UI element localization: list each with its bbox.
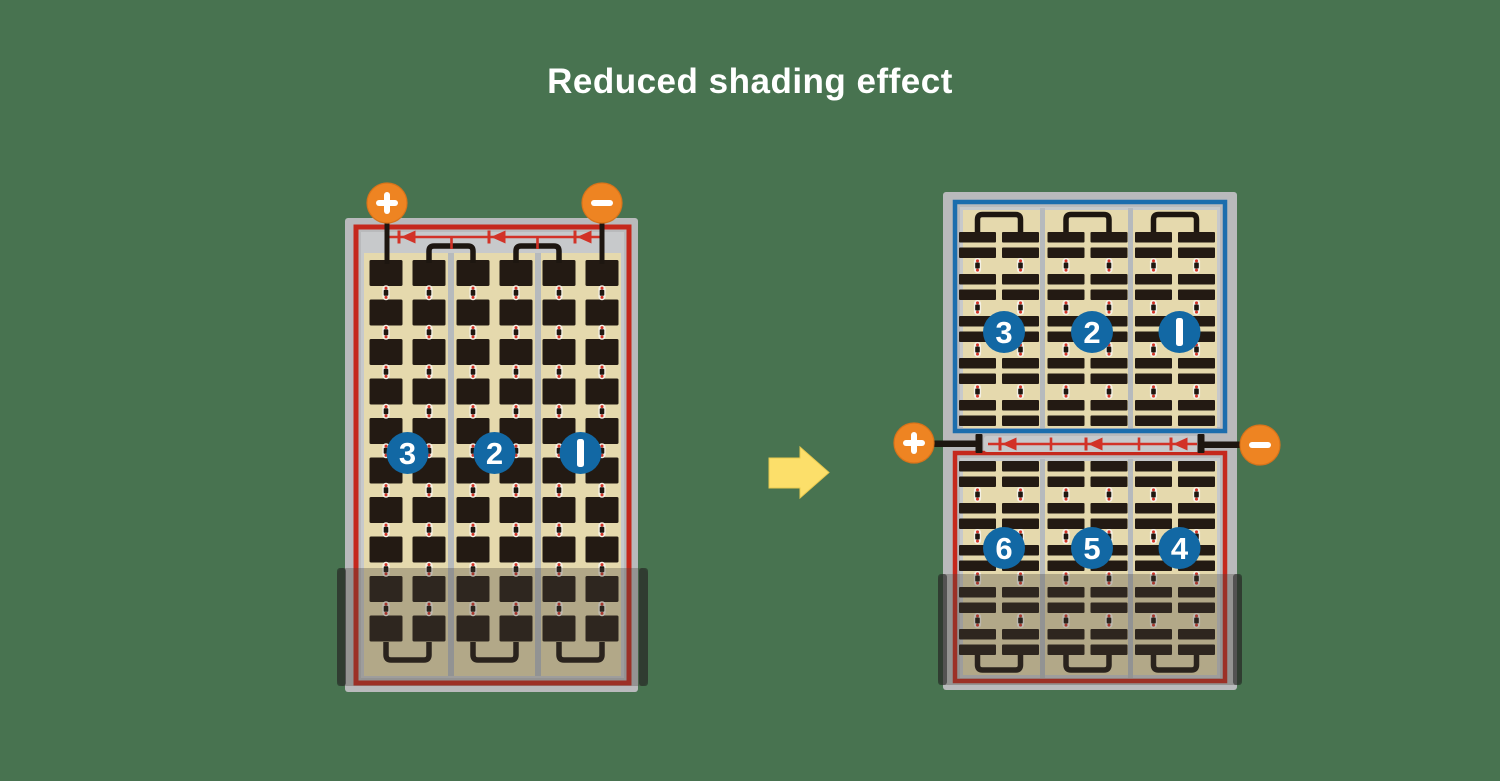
minus-glyph <box>591 200 613 206</box>
connector-dot <box>515 493 518 496</box>
solar-cell <box>457 537 490 563</box>
cell-connector <box>425 364 432 379</box>
diode-bar <box>574 231 577 244</box>
connector-dot <box>558 533 561 536</box>
connector-dot <box>558 484 561 487</box>
connector-dot <box>1152 269 1155 272</box>
solar-cell <box>586 537 619 563</box>
connector-dot <box>515 524 518 527</box>
cell-connector <box>1105 258 1112 273</box>
string-label: 2 <box>1083 315 1100 350</box>
shading-overlay-edge <box>639 568 648 686</box>
cell-connector <box>1105 300 1112 315</box>
cell-connector <box>425 325 432 340</box>
section-divider <box>1040 208 1045 429</box>
cell-connector <box>512 364 519 379</box>
cell-connector <box>1062 384 1069 399</box>
connector-dot <box>558 493 561 496</box>
cell-connector <box>382 522 389 537</box>
connector-dot <box>1152 259 1155 262</box>
connector-dot <box>976 311 979 314</box>
connector-dot <box>515 366 518 369</box>
half-cell-bar <box>1002 416 1039 427</box>
connector-dot <box>976 540 979 543</box>
connector-dot <box>515 484 518 487</box>
connector-dot <box>1019 395 1022 398</box>
string-number-badge <box>1159 311 1201 353</box>
connector-dot <box>428 405 431 408</box>
connector-core <box>427 329 432 335</box>
half-cell-bar <box>1091 400 1128 411</box>
cell-connector <box>512 325 519 340</box>
connector-core <box>1194 263 1199 269</box>
connector-dot <box>385 484 388 487</box>
plus-glyph <box>911 432 917 454</box>
string-label-bar <box>1176 318 1183 346</box>
connector-dot <box>428 484 431 487</box>
cell-connector <box>974 529 981 544</box>
string-label: 2 <box>486 436 503 471</box>
cell-connector <box>382 483 389 498</box>
connector-core <box>1194 305 1199 311</box>
half-cell-bar <box>1091 503 1128 514</box>
connector-core <box>557 527 562 533</box>
string-number-badge: 4 <box>1159 527 1201 569</box>
solar-cell <box>500 339 533 365</box>
connector-dot <box>558 287 561 290</box>
connector-core <box>1151 347 1156 353</box>
connector-dot <box>1019 269 1022 272</box>
connector-dot <box>1019 488 1022 491</box>
connector-core <box>1064 263 1069 269</box>
connector-dot <box>601 375 604 378</box>
connector-dot <box>976 498 979 501</box>
cell-connector <box>382 404 389 419</box>
half-cell-bar <box>1178 477 1215 488</box>
connector-core <box>1018 347 1023 353</box>
half-cell-bar <box>1135 503 1172 514</box>
connector-dot <box>428 287 431 290</box>
connector-core <box>1194 347 1199 353</box>
connector-dot <box>558 405 561 408</box>
connector-dot <box>601 563 604 566</box>
connector-dot <box>385 335 388 338</box>
solar-cell <box>370 537 403 563</box>
half-cell-bar <box>1002 374 1039 385</box>
shading-overlay-edge <box>337 568 346 686</box>
connector-core <box>1151 389 1156 395</box>
connector-dot <box>472 296 475 299</box>
connector-core <box>384 527 389 533</box>
cell-connector <box>598 285 605 300</box>
connector-dot <box>1195 301 1198 304</box>
terminal-wire <box>600 220 605 264</box>
connector-core <box>514 329 519 335</box>
connector-core <box>1064 534 1069 540</box>
connector-core <box>471 290 476 296</box>
connector-dot <box>385 524 388 527</box>
half-cell-bar <box>1091 290 1128 301</box>
connector-dot <box>428 326 431 329</box>
connector-core <box>557 408 562 414</box>
connector-dot <box>428 296 431 299</box>
half-cell-bar <box>959 248 996 259</box>
connector-dot <box>1195 395 1198 398</box>
cell-connector <box>974 384 981 399</box>
connector-dot <box>472 414 475 417</box>
solar-cell <box>500 300 533 326</box>
half-cell-bar <box>1002 290 1039 301</box>
solar-cell <box>457 339 490 365</box>
half-cell-bar <box>1091 358 1128 369</box>
connector-dot <box>558 296 561 299</box>
half-cell-bar <box>959 274 996 285</box>
connector-core <box>1151 492 1156 498</box>
cell-connector <box>382 364 389 379</box>
connector-dot <box>1019 385 1022 388</box>
half-cell-bar <box>1178 374 1215 385</box>
connector-dot <box>1195 488 1198 491</box>
diagram-canvas: Reduced shading effect 32+−32654+− <box>0 0 1500 781</box>
connector-dot <box>428 445 431 448</box>
minus-terminal: − <box>1240 425 1280 465</box>
cell-connector <box>512 522 519 537</box>
connector-core <box>471 408 476 414</box>
string-label: 3 <box>995 315 1012 350</box>
connector-core <box>557 290 562 296</box>
half-cell-bar <box>1091 416 1128 427</box>
string-number-badge: 2 <box>474 432 516 474</box>
connector-dot <box>601 524 604 527</box>
connector-dot <box>558 326 561 329</box>
connector-dot <box>428 563 431 566</box>
connector-dot <box>1108 395 1111 398</box>
connector-dot <box>515 533 518 536</box>
solar-cell <box>543 379 576 405</box>
string-label: 6 <box>995 531 1012 566</box>
cell-connector <box>382 285 389 300</box>
connector-dot <box>558 375 561 378</box>
string-number-badge: 5 <box>1071 527 1113 569</box>
connector-dot <box>558 445 561 448</box>
connector-core <box>514 369 519 375</box>
connector-dot <box>385 366 388 369</box>
cell-connector <box>425 404 432 419</box>
connector-dot <box>385 296 388 299</box>
connector-core <box>1064 492 1069 498</box>
half-cell-bar <box>1091 248 1128 259</box>
half-cell-bar <box>1002 232 1039 243</box>
solar-cell <box>586 339 619 365</box>
connector-core <box>384 290 389 296</box>
half-cell-bar <box>1002 274 1039 285</box>
half-cell-bar <box>1002 248 1039 259</box>
connector-dot <box>385 563 388 566</box>
connector-core <box>1151 263 1156 269</box>
half-cell-bar <box>1002 461 1039 472</box>
half-cell-bar <box>1178 248 1215 259</box>
connector-dot <box>515 287 518 290</box>
connector-dot <box>472 335 475 338</box>
cell-connector <box>1017 258 1024 273</box>
terminal-wire <box>933 441 977 448</box>
connector-dot <box>428 524 431 527</box>
cell-connector <box>1193 487 1200 502</box>
connector-dot <box>1019 311 1022 314</box>
cell-connector <box>598 522 605 537</box>
half-cell-bar <box>1091 477 1128 488</box>
connector-dot <box>601 405 604 408</box>
half-cell-bar <box>1002 400 1039 411</box>
connector-core <box>514 527 519 533</box>
cell-connector <box>555 364 562 379</box>
cell-connector <box>1193 300 1200 315</box>
cell-connector <box>1150 384 1157 399</box>
connector-core <box>975 534 980 540</box>
solar-cell <box>413 339 446 365</box>
connector-core <box>471 329 476 335</box>
connector-dot <box>1019 530 1022 533</box>
half-cell-bar <box>1178 416 1215 427</box>
half-cell-bar <box>1048 477 1085 488</box>
connector-dot <box>1108 311 1111 314</box>
connector-dot <box>472 445 475 448</box>
string-label: 3 <box>399 436 416 471</box>
half-cell-bar <box>1135 290 1172 301</box>
connector-core <box>975 492 980 498</box>
half-cell-bar <box>1048 232 1085 243</box>
cell-connector <box>974 258 981 273</box>
half-cell-bar <box>1135 477 1172 488</box>
connector-dot <box>976 343 979 346</box>
connector-dot <box>385 287 388 290</box>
shading-overlay <box>337 568 648 686</box>
connector-dot <box>515 405 518 408</box>
solar-cell <box>500 379 533 405</box>
half-cell-bar <box>1135 358 1172 369</box>
half-cell-bar <box>1048 290 1085 301</box>
connector-dot <box>472 524 475 527</box>
connector-dot <box>1065 540 1068 543</box>
cell-connector <box>1193 384 1200 399</box>
half-cell-bar <box>1135 461 1172 472</box>
cell-connector <box>425 285 432 300</box>
connector-dot <box>558 563 561 566</box>
cell-connector <box>1150 258 1157 273</box>
connector-dot <box>472 563 475 566</box>
cell-connector <box>1062 529 1069 544</box>
connector-dot <box>385 493 388 496</box>
connector-dot <box>1152 395 1155 398</box>
connector-core <box>557 487 562 493</box>
cell-connector <box>598 325 605 340</box>
half-cell-bar <box>1002 358 1039 369</box>
diode-bar <box>488 231 491 244</box>
solar-cell <box>543 497 576 523</box>
connector-dot <box>472 405 475 408</box>
connector-dot <box>976 301 979 304</box>
half-cell-bar <box>959 503 996 514</box>
cell-connector <box>555 325 562 340</box>
connector-dot <box>976 269 979 272</box>
half-cell-bar <box>1048 374 1085 385</box>
connector-core <box>427 527 432 533</box>
cell-connector <box>512 483 519 498</box>
connector-dot <box>428 493 431 496</box>
connector-dot <box>1108 301 1111 304</box>
cell-connector <box>382 325 389 340</box>
connector-core <box>1107 347 1112 353</box>
solar-cell <box>370 379 403 405</box>
connector-dot <box>558 524 561 527</box>
connector-core <box>384 487 389 493</box>
shading-overlay <box>938 574 1242 685</box>
solar-cell <box>457 379 490 405</box>
connector-core <box>1107 492 1112 498</box>
cell-connector <box>1150 342 1157 357</box>
connector-dot <box>385 326 388 329</box>
connector-dot <box>1152 311 1155 314</box>
connector-core <box>471 369 476 375</box>
connector-dot <box>1195 498 1198 501</box>
connector-dot <box>976 488 979 491</box>
half-cell-bar <box>959 358 996 369</box>
connector-dot <box>428 533 431 536</box>
connector-dot <box>1152 540 1155 543</box>
connector-dot <box>1065 259 1068 262</box>
half-cell-bar <box>1178 290 1215 301</box>
connector-dot <box>1065 343 1068 346</box>
connector-dot <box>976 395 979 398</box>
cell-connector <box>598 404 605 419</box>
connector-core <box>427 290 432 296</box>
cell-connector <box>555 522 562 537</box>
connector-dot <box>1152 343 1155 346</box>
diode-bar <box>1085 438 1088 451</box>
connector-core <box>600 329 605 335</box>
solar-cell <box>543 300 576 326</box>
connector-core <box>975 347 980 353</box>
half-cell-bar <box>1048 400 1085 411</box>
connector-dot <box>601 296 604 299</box>
connector-core <box>384 408 389 414</box>
connector-core <box>514 408 519 414</box>
cell-connector <box>1062 342 1069 357</box>
string-label: 4 <box>1171 531 1189 566</box>
half-cell-bar <box>1135 374 1172 385</box>
diode-bar <box>398 231 401 244</box>
connector-dot <box>472 493 475 496</box>
connector-core <box>471 527 476 533</box>
connector-dot <box>1152 301 1155 304</box>
string-label-bar <box>577 439 584 467</box>
connector-core <box>975 263 980 269</box>
half-cell-bar <box>1048 503 1085 514</box>
cell-connector <box>1150 300 1157 315</box>
connector-dot <box>1108 353 1111 356</box>
connector-core <box>384 329 389 335</box>
connector-dot <box>1152 530 1155 533</box>
half-cell-bar <box>1048 274 1085 285</box>
cell-connector <box>469 522 476 537</box>
solar-cell <box>586 497 619 523</box>
connector-core <box>1107 263 1112 269</box>
solar-cell <box>413 260 446 286</box>
connector-dot <box>1019 353 1022 356</box>
cell-connector <box>555 285 562 300</box>
plus-terminal: + <box>894 423 934 463</box>
solar-cell <box>500 497 533 523</box>
left-panel: 32+− <box>337 183 648 692</box>
connector-dot <box>976 259 979 262</box>
solar-cell <box>543 537 576 563</box>
terminal-wire <box>1203 442 1243 449</box>
connector-dot <box>472 366 475 369</box>
cell-connector <box>469 404 476 419</box>
connector-dot <box>601 287 604 290</box>
connector-core <box>427 369 432 375</box>
cell-connector <box>598 483 605 498</box>
connector-dot <box>601 493 604 496</box>
cell-connector <box>974 300 981 315</box>
half-cell-bar <box>1135 400 1172 411</box>
cell-connector <box>555 483 562 498</box>
half-cell-bar <box>1178 503 1215 514</box>
connector-dot <box>1019 301 1022 304</box>
cell-connector <box>512 285 519 300</box>
connector-dot <box>472 326 475 329</box>
half-cell-bar <box>1091 461 1128 472</box>
connector-core <box>557 329 562 335</box>
half-cell-bar <box>1135 519 1172 530</box>
connector-core <box>1064 389 1069 395</box>
string-number-badge <box>560 432 602 474</box>
cell-connector <box>512 404 519 419</box>
connector-dot <box>472 533 475 536</box>
connector-dot <box>385 445 388 448</box>
section-divider <box>1128 208 1133 429</box>
connector-dot <box>1019 259 1022 262</box>
solar-cell <box>370 300 403 326</box>
connector-core <box>384 369 389 375</box>
half-cell-bar <box>959 232 996 243</box>
half-cell-bar <box>1178 461 1215 472</box>
connector-core <box>1018 492 1023 498</box>
solar-cell <box>543 260 576 286</box>
connector-core <box>1107 389 1112 395</box>
connector-dot <box>472 287 475 290</box>
connector-core <box>600 408 605 414</box>
connector-dot <box>1108 259 1111 262</box>
connector-dot <box>1152 498 1155 501</box>
cell-connector <box>469 325 476 340</box>
cell-connector <box>1062 258 1069 273</box>
half-cell-bar <box>959 290 996 301</box>
half-cell-bar <box>1048 416 1085 427</box>
cell-connector <box>425 483 432 498</box>
half-cell-bar <box>1048 358 1085 369</box>
connector-dot <box>1065 353 1068 356</box>
minus-glyph <box>1249 442 1271 448</box>
connector-core <box>1107 305 1112 311</box>
connector-core <box>600 487 605 493</box>
solar-cell <box>543 339 576 365</box>
solar-cell <box>370 339 403 365</box>
half-cell-bar <box>1135 416 1172 427</box>
connector-core <box>1018 389 1023 395</box>
cell-connector <box>1105 384 1112 399</box>
connector-dot <box>515 414 518 417</box>
